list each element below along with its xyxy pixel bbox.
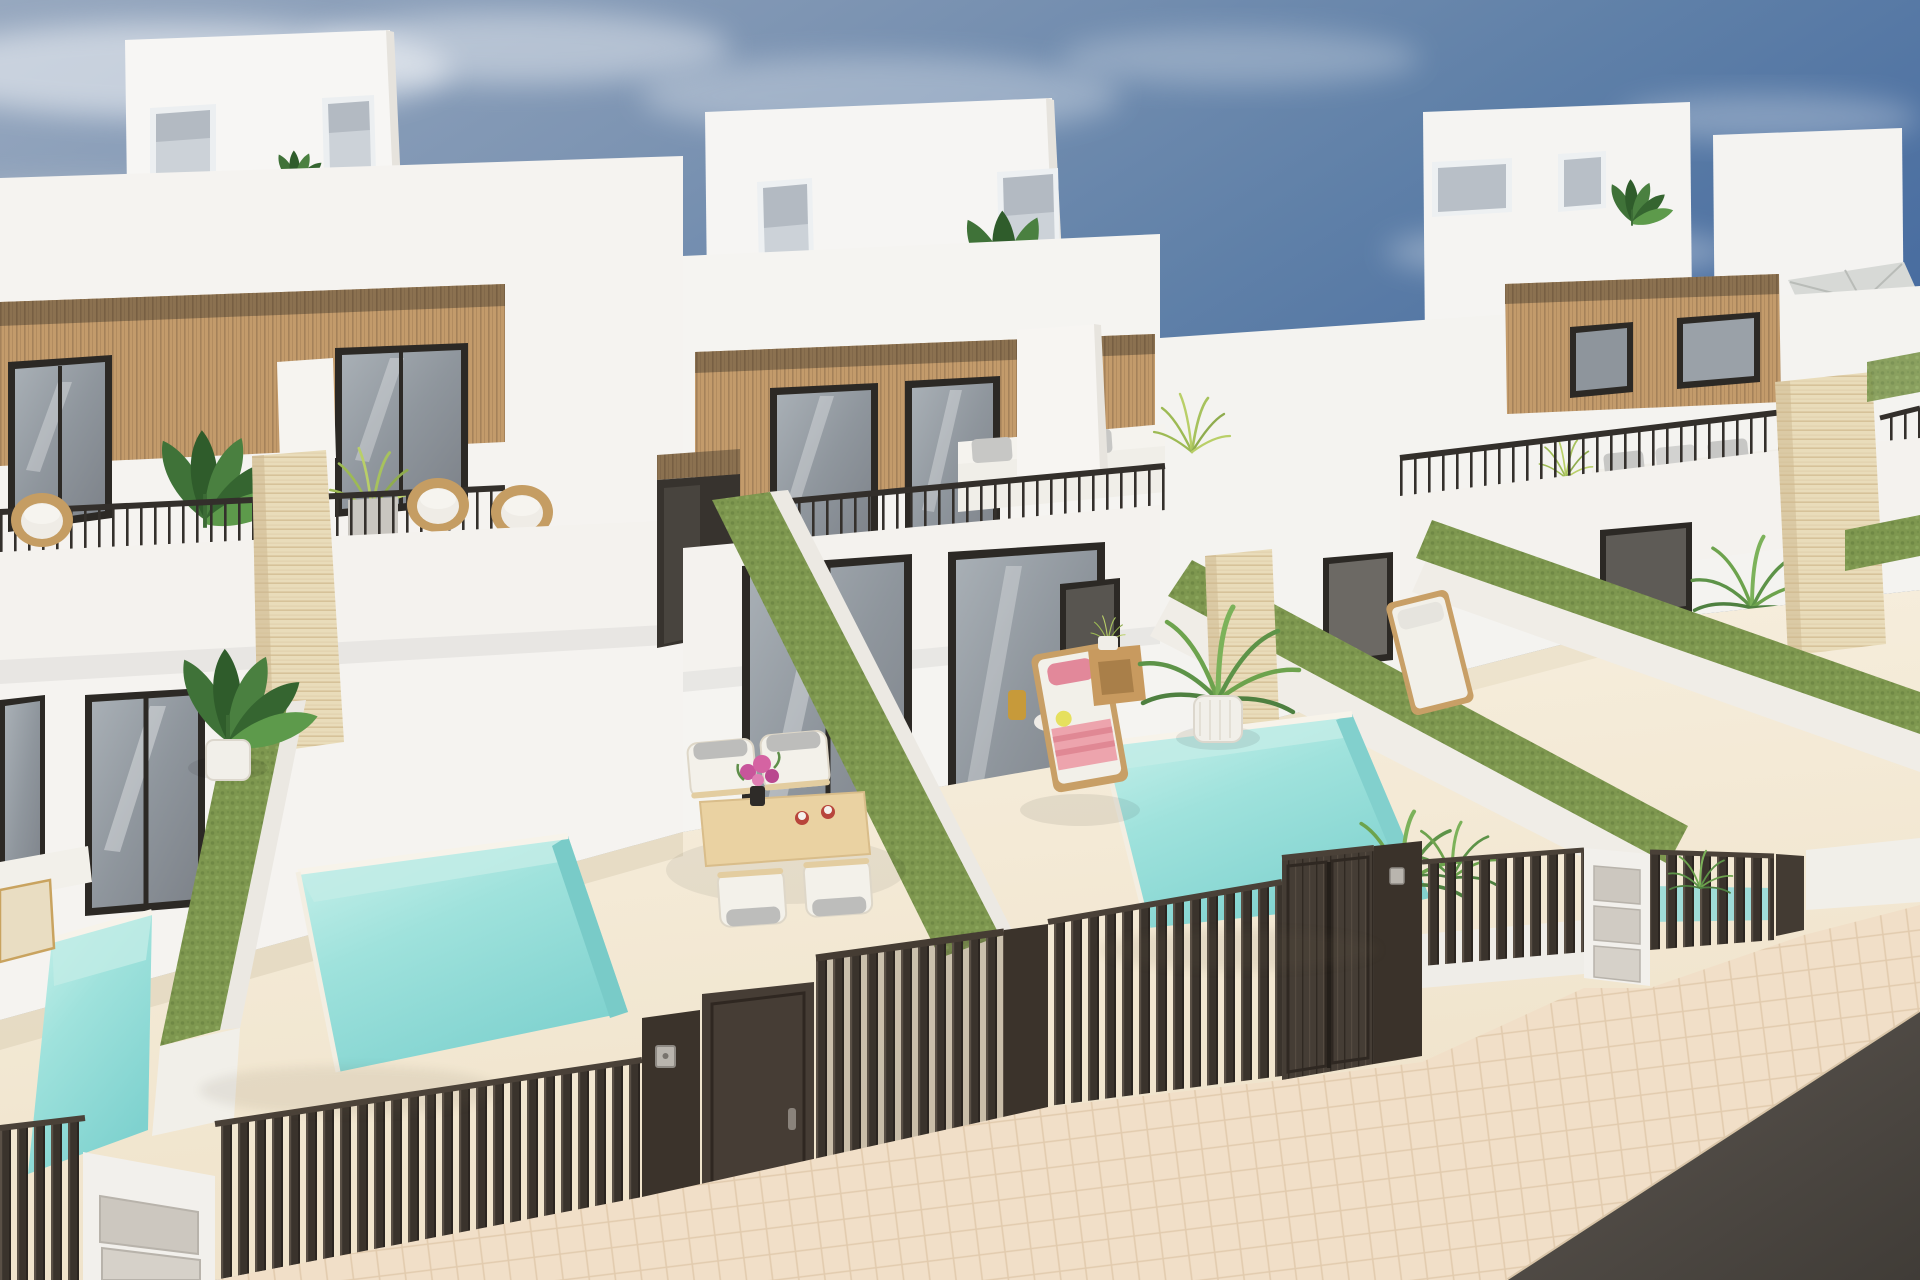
letterbox-pillar-right bbox=[1584, 848, 1650, 986]
dining-chair bbox=[717, 868, 787, 927]
rattan-chair bbox=[407, 478, 469, 532]
window-dark bbox=[1570, 322, 1633, 398]
roof-window bbox=[1558, 151, 1606, 212]
door-handle bbox=[788, 1108, 796, 1130]
dining-table bbox=[700, 792, 870, 866]
roof-window bbox=[1432, 158, 1512, 217]
fence-seg-5 bbox=[1650, 851, 1774, 950]
glass-door bbox=[85, 688, 205, 916]
fence-end-panel bbox=[1776, 854, 1804, 936]
keypad bbox=[1390, 868, 1404, 884]
roof-window bbox=[322, 95, 376, 177]
rattan-chair bbox=[11, 493, 73, 547]
gate-post bbox=[1374, 841, 1422, 1064]
travertine-pillar-right bbox=[1775, 372, 1886, 656]
render-stage bbox=[0, 0, 1920, 1280]
fence-seg-1 bbox=[0, 1118, 85, 1280]
side-table bbox=[1088, 645, 1146, 706]
dining-chair bbox=[803, 858, 873, 917]
interior-chair bbox=[1008, 690, 1026, 720]
fence-seg-4 bbox=[1422, 850, 1584, 988]
white-wall-end bbox=[1806, 838, 1920, 910]
villa-render bbox=[0, 0, 1920, 1280]
roof-window bbox=[150, 104, 216, 180]
window-dark bbox=[1677, 312, 1760, 389]
fence-seg-3 bbox=[1048, 882, 1282, 1106]
terrace-divider-pillar bbox=[1017, 324, 1108, 478]
